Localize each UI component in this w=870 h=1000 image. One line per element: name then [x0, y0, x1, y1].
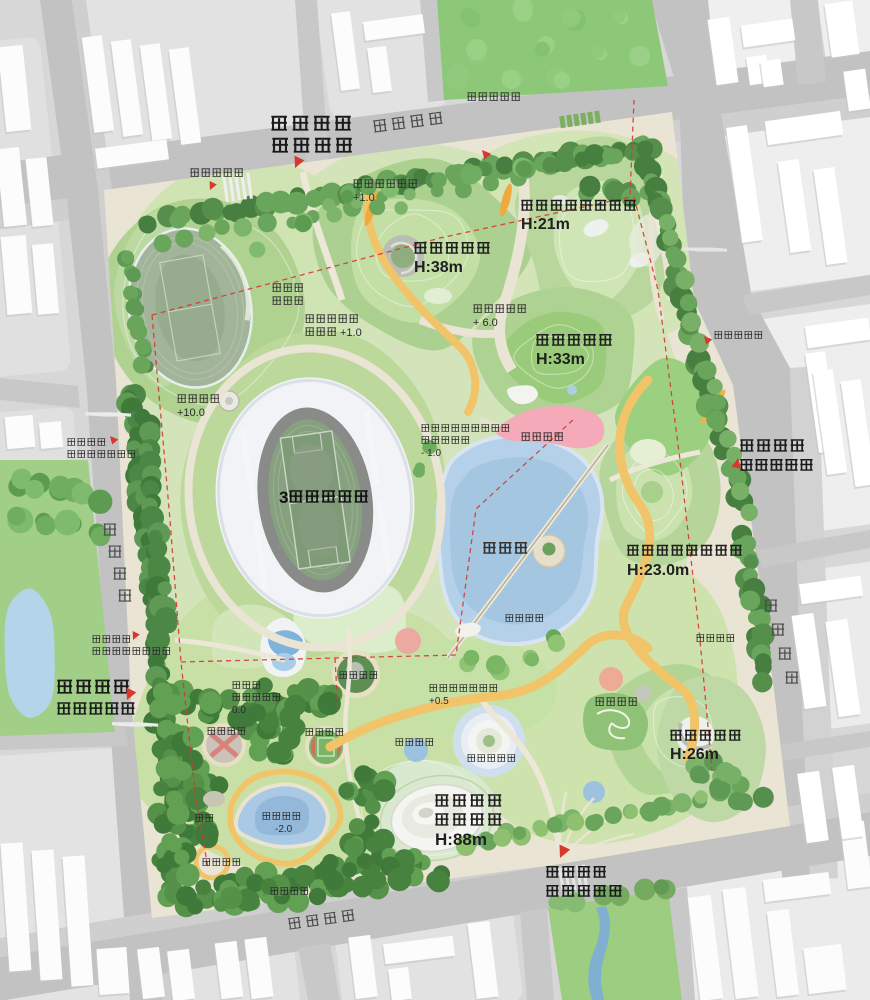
svg-text:+10.0: +10.0 [177, 407, 205, 419]
svg-text:0.0: 0.0 [232, 705, 246, 716]
svg-text:3: 3 [279, 488, 288, 507]
svg-text:H:33m: H:33m [536, 351, 585, 368]
svg-text:H:38m: H:38m [414, 259, 463, 276]
svg-text:+1.0: +1.0 [340, 327, 362, 339]
svg-text:- 1.0: - 1.0 [421, 448, 441, 459]
svg-text:+ 6.0: + 6.0 [473, 317, 498, 329]
svg-text:H:26m: H:26m [670, 746, 719, 763]
svg-text:H:88m: H:88m [435, 830, 487, 849]
svg-text:-2.0: -2.0 [275, 824, 293, 835]
svg-text:H:23.0m: H:23.0m [627, 562, 689, 579]
svg-text:+1.0: +1.0 [353, 192, 375, 204]
svg-text:H:21m: H:21m [521, 216, 570, 233]
svg-text:+0.5: +0.5 [429, 696, 449, 707]
